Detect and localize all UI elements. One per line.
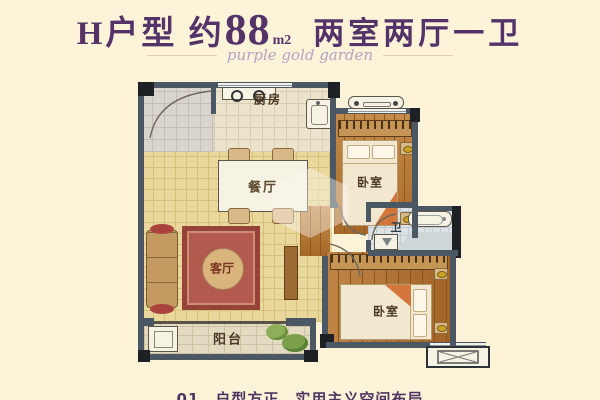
pier-balcony-left (138, 350, 150, 362)
subtitle-line-left (147, 55, 217, 56)
chair-icon (228, 208, 250, 224)
washing-machine-icon (148, 326, 178, 352)
wall-balcony-bottom (140, 354, 316, 360)
bath-label: 卫 (391, 219, 402, 235)
subtitle-line-right (383, 55, 453, 56)
kitchen-sink-icon (306, 99, 332, 129)
pier-entry (138, 82, 154, 96)
bedroom-bottom-label: 卧室 (373, 303, 399, 320)
dining-label: 餐厅 (248, 177, 278, 196)
wall-bath-left-lower (366, 240, 371, 252)
floorplan-page: H户型 约88m2两室两厅一卫 purple gold garden (0, 0, 600, 400)
ac-unit-icon (426, 346, 490, 368)
living-label: 客厅 (210, 260, 234, 277)
pier-bedroom-top-right (410, 108, 420, 122)
wall-bedroom-right (412, 108, 418, 238)
ac-unit-icon (348, 96, 404, 109)
subtitle: purple gold garden (0, 46, 600, 64)
pier-balcony-right (304, 350, 318, 362)
wall-bath-top (418, 206, 454, 211)
sofa-armrest (150, 304, 174, 314)
sofa-armrest (150, 224, 174, 234)
wall-balcony-stub-left (142, 318, 154, 326)
lamp-icon (437, 271, 447, 278)
balcony-label: 阳台 (213, 329, 243, 348)
wall-bedroom2-right (450, 252, 456, 348)
wardrobe-icon (330, 254, 448, 270)
subtitle-text: purple gold garden (227, 46, 373, 64)
window-icon (218, 82, 292, 88)
bedroom-top-label: 卧室 (357, 174, 383, 191)
wall-bedroom2-left (322, 256, 328, 336)
pier-kitchen-bedroom (328, 82, 340, 98)
footnote-text: 01、户型方正，实用主义空间布局 (0, 388, 600, 400)
sofa-icon (146, 230, 178, 308)
kitchen-label: 厨房 (254, 91, 282, 108)
wall-bath-bottom (368, 250, 458, 256)
wardrobe-icon (338, 120, 412, 137)
wall-bath-left-upper (366, 208, 371, 222)
wall-entry-kitchen (211, 86, 216, 114)
washbasin-icon (374, 234, 398, 250)
lamp-icon (437, 325, 447, 332)
tv-cabinet-icon (284, 246, 298, 300)
wall-bedroom-bottom (366, 202, 418, 208)
